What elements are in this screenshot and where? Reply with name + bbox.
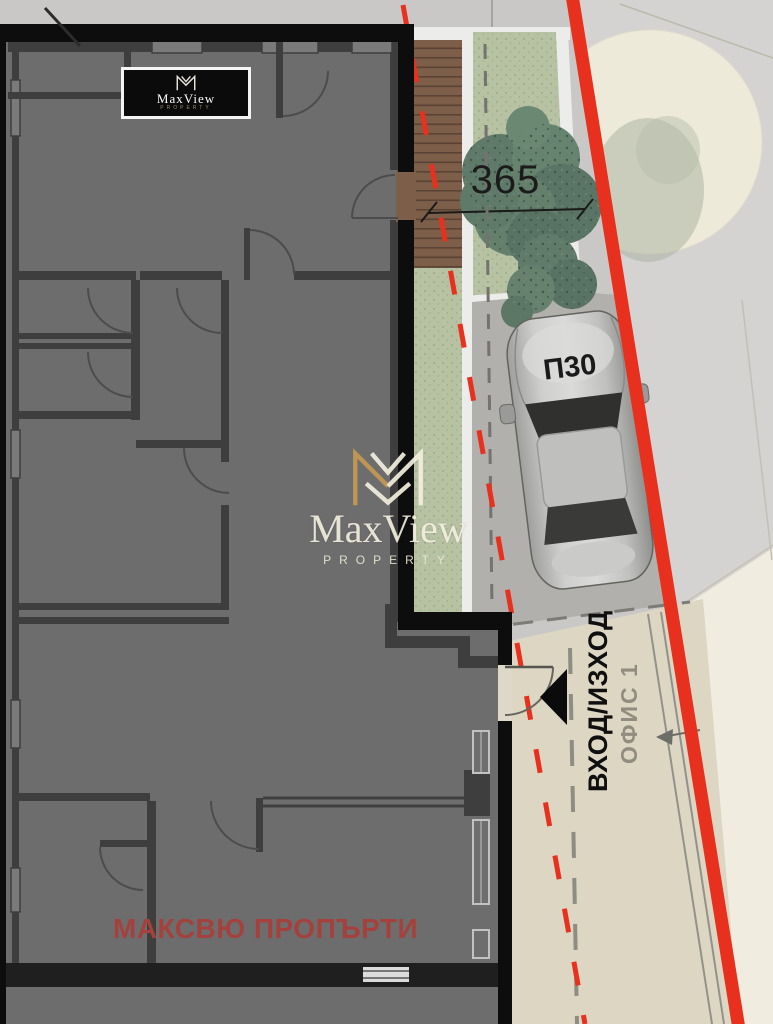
outer-wall-left [0, 24, 6, 1024]
logo-monogram-icon [175, 75, 197, 91]
walkway-strip-vertical [462, 28, 473, 620]
dimension-label: 365 [448, 158, 563, 203]
entrance-exit-label: ВХОД/ИЗХОД [583, 610, 614, 792]
logo-brand-text: MaxView [157, 92, 215, 105]
bottom-outer-wall [6, 963, 502, 987]
outer-wall-step [398, 612, 512, 630]
outer-wall-right-upper [398, 24, 414, 624]
site-plan-canvas: П30 [0, 0, 773, 1024]
footer-brand-label: МАКСВЮ ПРОПЪРТИ [113, 913, 433, 945]
logo-sub-text: PROPERTY [160, 106, 211, 111]
logo-badge: MaxView PROPERTY [121, 67, 251, 119]
top-wall-windows [152, 41, 392, 53]
site-plan-drawing: П30 [0, 0, 773, 1024]
office-label: ОФИС 1 [616, 662, 643, 764]
deck-door-gap [398, 172, 414, 220]
parking-spot-label: П30 [542, 349, 599, 387]
